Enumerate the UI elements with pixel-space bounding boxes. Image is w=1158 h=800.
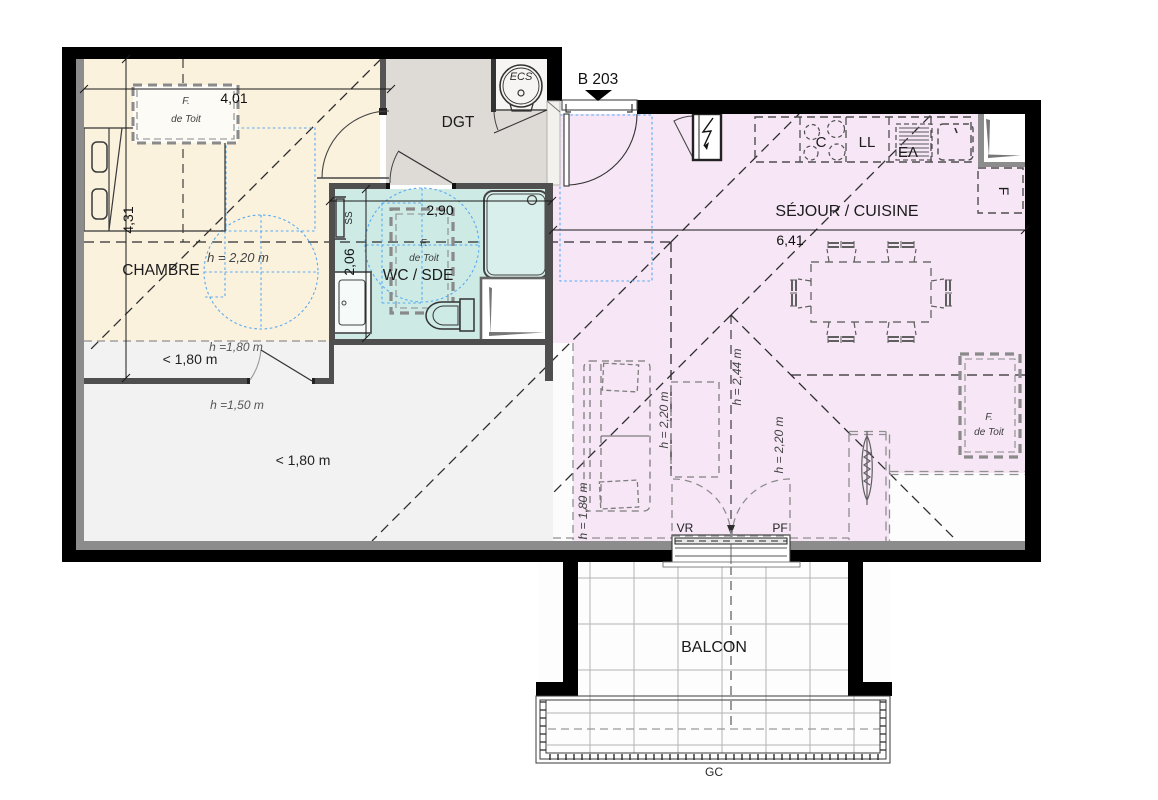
svg-text:F.: F.	[985, 412, 993, 423]
svg-text:B 203: B 203	[578, 71, 619, 88]
svg-text:de Toit: de Toit	[974, 427, 1005, 438]
svg-text:de Toit: de Toit	[171, 114, 202, 125]
svg-text:C: C	[816, 134, 827, 151]
svg-text:2,06: 2,06	[341, 248, 357, 275]
svg-text:4,31: 4,31	[120, 206, 136, 233]
svg-text:de Toit: de Toit	[409, 253, 440, 264]
svg-text:h =1,50 m: h =1,50 m	[210, 398, 264, 412]
svg-text:DGT: DGT	[442, 114, 475, 131]
svg-text:PF: PF	[772, 521, 787, 535]
svg-text:< 1,80 m: < 1,80 m	[163, 351, 218, 367]
svg-text:F.: F.	[420, 238, 428, 249]
svg-text:< 1,80 m: < 1,80 m	[276, 452, 331, 468]
svg-text:BALCON: BALCON	[681, 639, 747, 656]
svg-text:h = 2,20 m: h = 2,20 m	[657, 391, 671, 448]
svg-text:6,41: 6,41	[776, 232, 803, 248]
svg-text:SÉJOUR / CUISINE: SÉJOUR / CUISINE	[775, 201, 918, 220]
svg-text:h = 1,80 m: h = 1,80 m	[576, 482, 590, 539]
svg-text:SS: SS	[344, 211, 355, 225]
svg-text:F: F	[996, 187, 1012, 196]
svg-text:F.: F.	[182, 96, 190, 107]
svg-text:LL: LL	[859, 134, 876, 151]
svg-text:WC / SDE: WC / SDE	[383, 267, 454, 284]
svg-text:ECS: ECS	[510, 71, 533, 83]
svg-text:h = 2,20 m: h = 2,20 m	[207, 250, 269, 265]
svg-text:EV: EV	[898, 143, 918, 160]
svg-text:h = 2,20 m: h = 2,20 m	[772, 416, 786, 473]
svg-text:h = 2,44 m: h = 2,44 m	[730, 348, 744, 405]
svg-text:GC: GC	[705, 765, 723, 779]
svg-text:CHAMBRE: CHAMBRE	[122, 262, 200, 279]
svg-text:VR: VR	[677, 521, 694, 535]
svg-text:2,90: 2,90	[426, 202, 453, 218]
svg-text:4,01: 4,01	[220, 90, 247, 106]
